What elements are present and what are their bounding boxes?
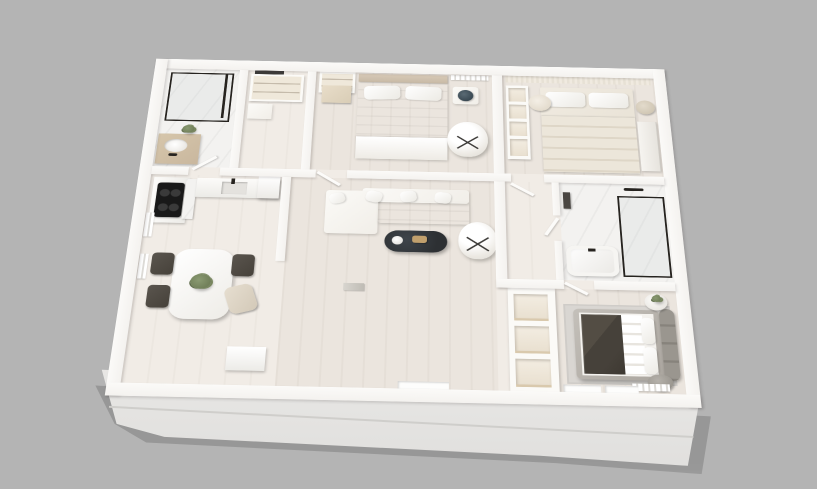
wardrobe-shelf — [254, 83, 300, 85]
cubby — [508, 88, 526, 102]
bed1-pillow — [364, 86, 401, 100]
tall-cabinet — [257, 176, 281, 198]
bed3-charcoal-duvet — [581, 314, 628, 374]
cubby — [510, 139, 528, 156]
sofa-pillow — [434, 191, 452, 204]
bed3-pillow — [643, 347, 659, 374]
storage-cubby — [514, 326, 550, 354]
hanging-towels — [563, 192, 571, 209]
storage-shelving — [508, 288, 560, 392]
living-armchair — [458, 222, 497, 260]
bedroom2-shelf-unit — [506, 85, 531, 159]
floor-magazines — [343, 283, 364, 291]
side-table-decor — [458, 90, 474, 101]
bed3-pillow — [640, 318, 656, 345]
bed1-bench — [321, 85, 351, 103]
cubby — [509, 122, 527, 136]
black-cooktop — [153, 182, 185, 217]
bed2-layered-duvet — [541, 116, 640, 174]
dining-chair-dark — [150, 252, 175, 274]
wall-h1-segment — [151, 166, 189, 175]
bed2-side-table — [528, 94, 551, 111]
wall-h2-segment — [496, 279, 564, 289]
storage-cubby — [513, 294, 548, 321]
radiator — [451, 75, 489, 81]
floorplan-scene — [0, 0, 817, 489]
floor-plan — [105, 59, 702, 408]
storage-cubby — [515, 359, 551, 388]
bed2-pillow — [545, 92, 585, 108]
bed1-folded-blanket — [355, 136, 447, 160]
black-faucet — [168, 153, 177, 156]
open-wardrobe — [249, 74, 305, 102]
credenza — [225, 346, 266, 371]
bedroom1-armchair — [447, 122, 488, 158]
wardrobe-shelf — [253, 91, 300, 93]
dining-chair-dark — [145, 285, 171, 308]
shelf — [322, 78, 353, 80]
black-towel-rail — [624, 188, 644, 191]
cubby — [509, 105, 527, 119]
closet-cabinet — [247, 103, 273, 119]
plan-perspective-wrap — [148, 59, 665, 476]
bed2-pillow — [588, 93, 629, 109]
bathtub-spout — [588, 249, 596, 252]
bed1-pillow — [405, 86, 442, 101]
wall-h2-segment — [594, 281, 676, 292]
dining-chair-dark — [231, 254, 256, 276]
bed3-plant — [652, 295, 662, 302]
gold-tray — [412, 236, 427, 243]
kitchen-faucet — [231, 178, 235, 183]
sofa-seats — [378, 201, 470, 225]
shower-glass-enclosure — [617, 196, 672, 278]
